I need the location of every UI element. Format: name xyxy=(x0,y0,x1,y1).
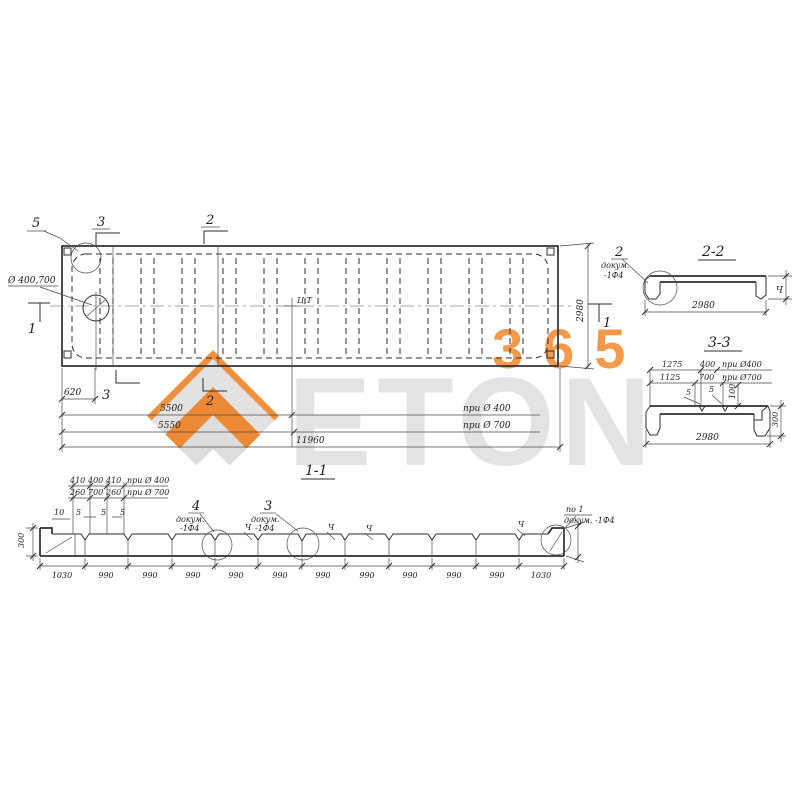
section-3-3-title: 3-3 xyxy=(708,335,731,351)
sec11-h-mark-2: Ч xyxy=(366,524,373,533)
sec11-row1-1: 400 xyxy=(87,476,103,485)
sec33-dim-400: 400 xyxy=(699,360,715,369)
sec11-row2-2: 260 xyxy=(105,488,121,497)
dim-5500: 5500 xyxy=(160,404,183,414)
plan-cg-label: Ц.Т xyxy=(297,296,313,305)
detail-right-circle xyxy=(541,525,571,555)
seg-dim-7: 990 xyxy=(359,571,374,580)
sec11-h-mark-3: Ч xyxy=(518,520,525,529)
cond-700: при Ø 700 xyxy=(463,420,511,431)
sec11-row2-0: 260 xyxy=(69,488,85,497)
seg-dim-2: 990 xyxy=(142,571,157,580)
plan-hole-note: Ø 400,700 xyxy=(7,275,56,286)
watermark: ETON 365 xyxy=(141,317,657,504)
cond-400: при Ø 400 xyxy=(463,403,511,414)
sec33-dim-5a: 5 xyxy=(686,388,691,397)
sec11-detail4-label: 4 xyxy=(191,499,200,514)
sec33-width-dim: 2980 xyxy=(695,433,719,443)
section-2-2-title: 2-2 xyxy=(701,244,725,260)
plan-detail-5-label: 5 xyxy=(32,216,40,231)
sec11-detail4-note1: докум. xyxy=(176,515,204,524)
sec11-row3-3: 5 xyxy=(120,508,125,517)
plan-sec2-top-label: 2 xyxy=(205,213,214,228)
sec11-row3-0: 10 xyxy=(54,508,64,517)
dim-total: 11960 xyxy=(296,436,325,446)
sec33-dim-100: 100 xyxy=(728,384,737,399)
dim-620: 620 xyxy=(64,388,81,398)
sec11-right-note1: по 1 xyxy=(566,505,584,514)
seg-dim-4: 990 xyxy=(228,571,243,580)
sec11-detail3-note1: докум. xyxy=(251,515,279,524)
plan-sec1-right-label: 1 xyxy=(603,316,611,331)
sec22-note-2: -1Ф4 xyxy=(604,271,624,280)
seg-dim-3: 990 xyxy=(185,571,200,580)
sec11-row2-3: при Ø 700 xyxy=(127,488,169,497)
sec11-detail3-note2: -1Ф4 xyxy=(255,524,275,533)
section-1-1-title: 1-1 xyxy=(305,463,328,479)
plan-sec3-top-label: 3 xyxy=(97,215,105,230)
plan-sec3-bot-label: 3 xyxy=(102,388,110,403)
sec11-row1-3: при Ø 400 xyxy=(127,476,169,485)
sec11-row1-2: 410 xyxy=(105,476,121,485)
seg-dim-10: 990 xyxy=(489,571,504,580)
sec22-height-label: Ч xyxy=(776,286,784,296)
plan-sec2-bot-label: 2 xyxy=(205,394,214,409)
seg-dim-1: 990 xyxy=(98,571,113,580)
sec11-detail4-note2: -1Ф4 xyxy=(180,524,200,533)
sec22-detail-label: 2 xyxy=(614,245,623,260)
dim-5550: 5550 xyxy=(158,421,181,431)
sec11-h-mark-1: Ч xyxy=(328,523,335,532)
sec33-dim-300: 300 xyxy=(771,412,780,427)
sec33-cond-700: при Ø700 xyxy=(722,373,762,382)
section-2-2: 2-2 2 докум. -1Ф4 2980 Ч xyxy=(601,244,792,316)
sec11-detail3-label: 3 xyxy=(264,499,272,514)
sec22-width-dim: 2980 xyxy=(691,301,715,311)
seg-dim-5: 990 xyxy=(272,571,287,580)
plan-width-dim: 2980 xyxy=(576,299,586,323)
sec11-height-left: 300 xyxy=(17,533,26,548)
section-3-3: 3-3 1275 400 при Ø400 1125 700 при Ø700 … xyxy=(643,335,786,448)
sec11-row3-2: 5 xyxy=(101,508,106,517)
seg-dim-8: 990 xyxy=(402,571,417,580)
drawing-canvas: ETON 365 5 3 2 xyxy=(0,0,800,800)
sec11-row3-1: 5 xyxy=(76,508,81,517)
sec11-h-mark-0: Ч xyxy=(245,523,252,532)
seg-dim-11: 1030 xyxy=(531,571,551,580)
plan-sec1-left-label: 1 xyxy=(28,322,36,337)
sec11-segment-dims: 1030 990 990 990 990 990 990 990 990 990… xyxy=(52,571,551,580)
sec33-dim-5b: 5 xyxy=(709,385,714,394)
watermark-number-text: 365 xyxy=(492,317,645,380)
seg-dim-0: 1030 xyxy=(52,571,72,580)
sec33-cond-400: при Ø400 xyxy=(722,360,762,369)
sec33-dim-1125: 1125 xyxy=(660,373,680,382)
sec33-dim-1275: 1275 xyxy=(662,360,682,369)
sec11-row1-0: 410 xyxy=(69,476,85,485)
seg-dim-6: 990 xyxy=(315,571,330,580)
seg-dim-9: 990 xyxy=(446,571,461,580)
